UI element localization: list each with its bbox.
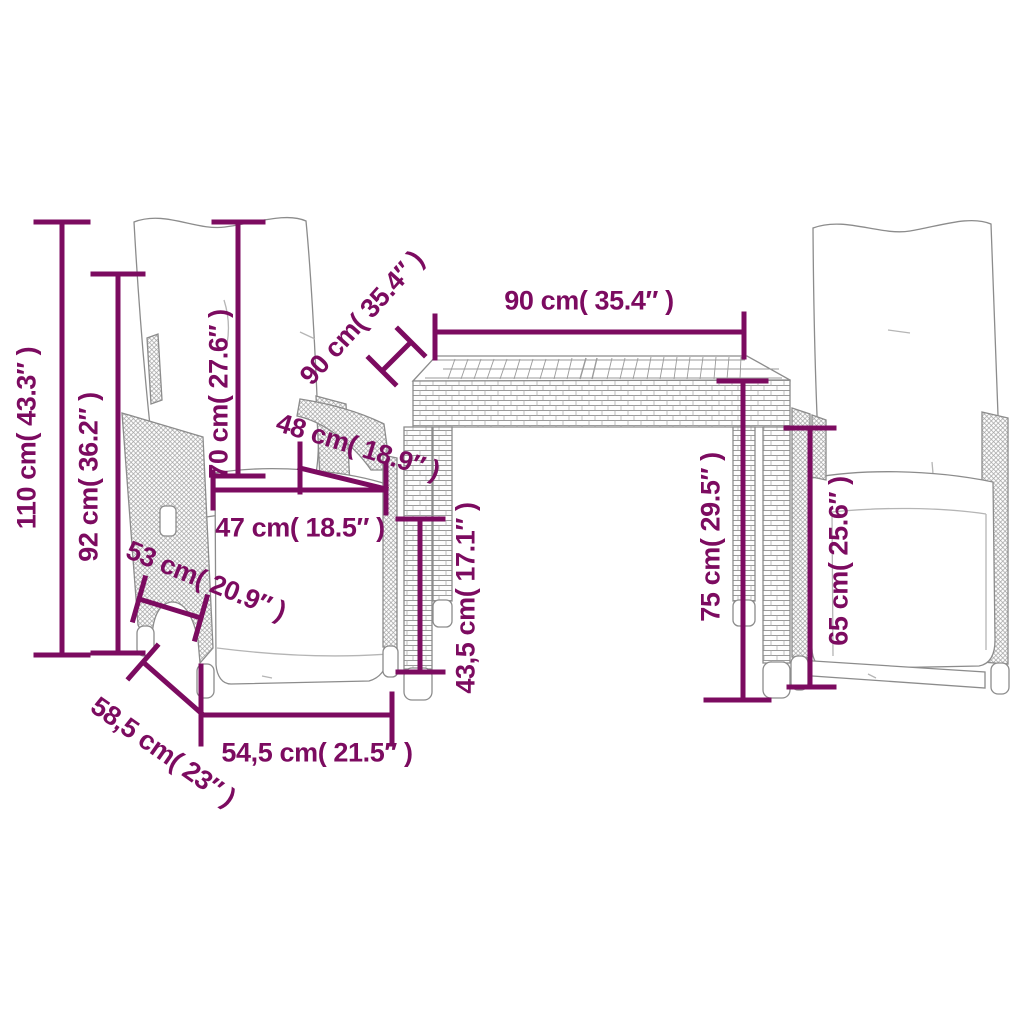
dim-line-table-depth [369, 329, 424, 384]
dim-line-table-width [435, 314, 744, 358]
dim-label-seat-width: 47 cm( 18.5″ ) [215, 513, 384, 544]
dim-label-backrest-height: 92 cm( 36.2″ ) [74, 392, 105, 561]
dim-label-table-width: 90 cm( 35.4″ ) [504, 286, 673, 317]
dim-line-seat-height [398, 519, 443, 672]
dim-label-seat-height: 43,5 cm( 17.1″ ) [451, 502, 482, 693]
dimension-diagram: 110 cm( 43.3″ ) 92 cm( 36.2″ ) 70 cm( 27… [0, 0, 1024, 1024]
dimension-lines [0, 0, 1024, 1024]
dim-line-chair-width [201, 666, 392, 744]
dim-label-overall-height: 110 cm( 43.3″ ) [12, 347, 43, 530]
dim-label-armrest-height: 65 cm( 25.6″ ) [824, 476, 855, 645]
dim-label-back-cushion-height: 70 cm( 27.6″ ) [204, 309, 235, 478]
dim-line-chair-depth [129, 646, 201, 713]
dim-label-table-height: 75 cm( 29.5″ ) [696, 452, 727, 621]
dim-label-chair-width: 54,5 cm( 21.5″ ) [221, 738, 412, 769]
